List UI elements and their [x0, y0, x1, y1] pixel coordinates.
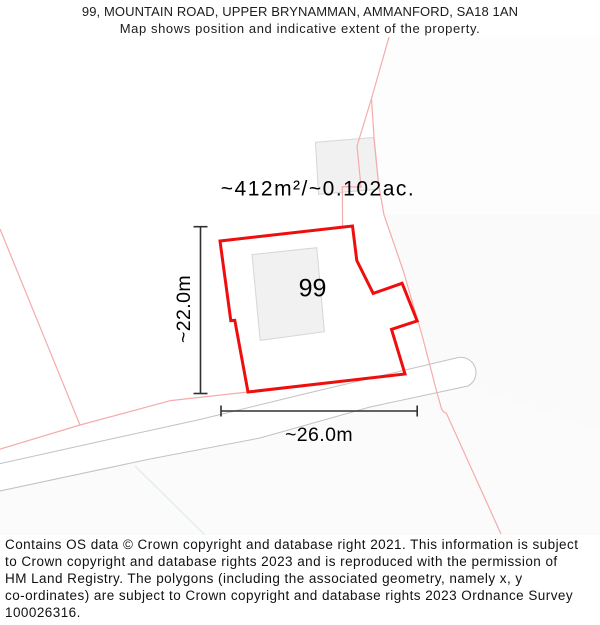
- svg-text:~412m²/~0.102ac.: ~412m²/~0.102ac.: [221, 178, 415, 201]
- svg-text:~26.0m: ~26.0m: [285, 424, 353, 446]
- svg-text:~22.0m: ~22.0m: [173, 275, 195, 343]
- svg-text:99: 99: [299, 275, 327, 303]
